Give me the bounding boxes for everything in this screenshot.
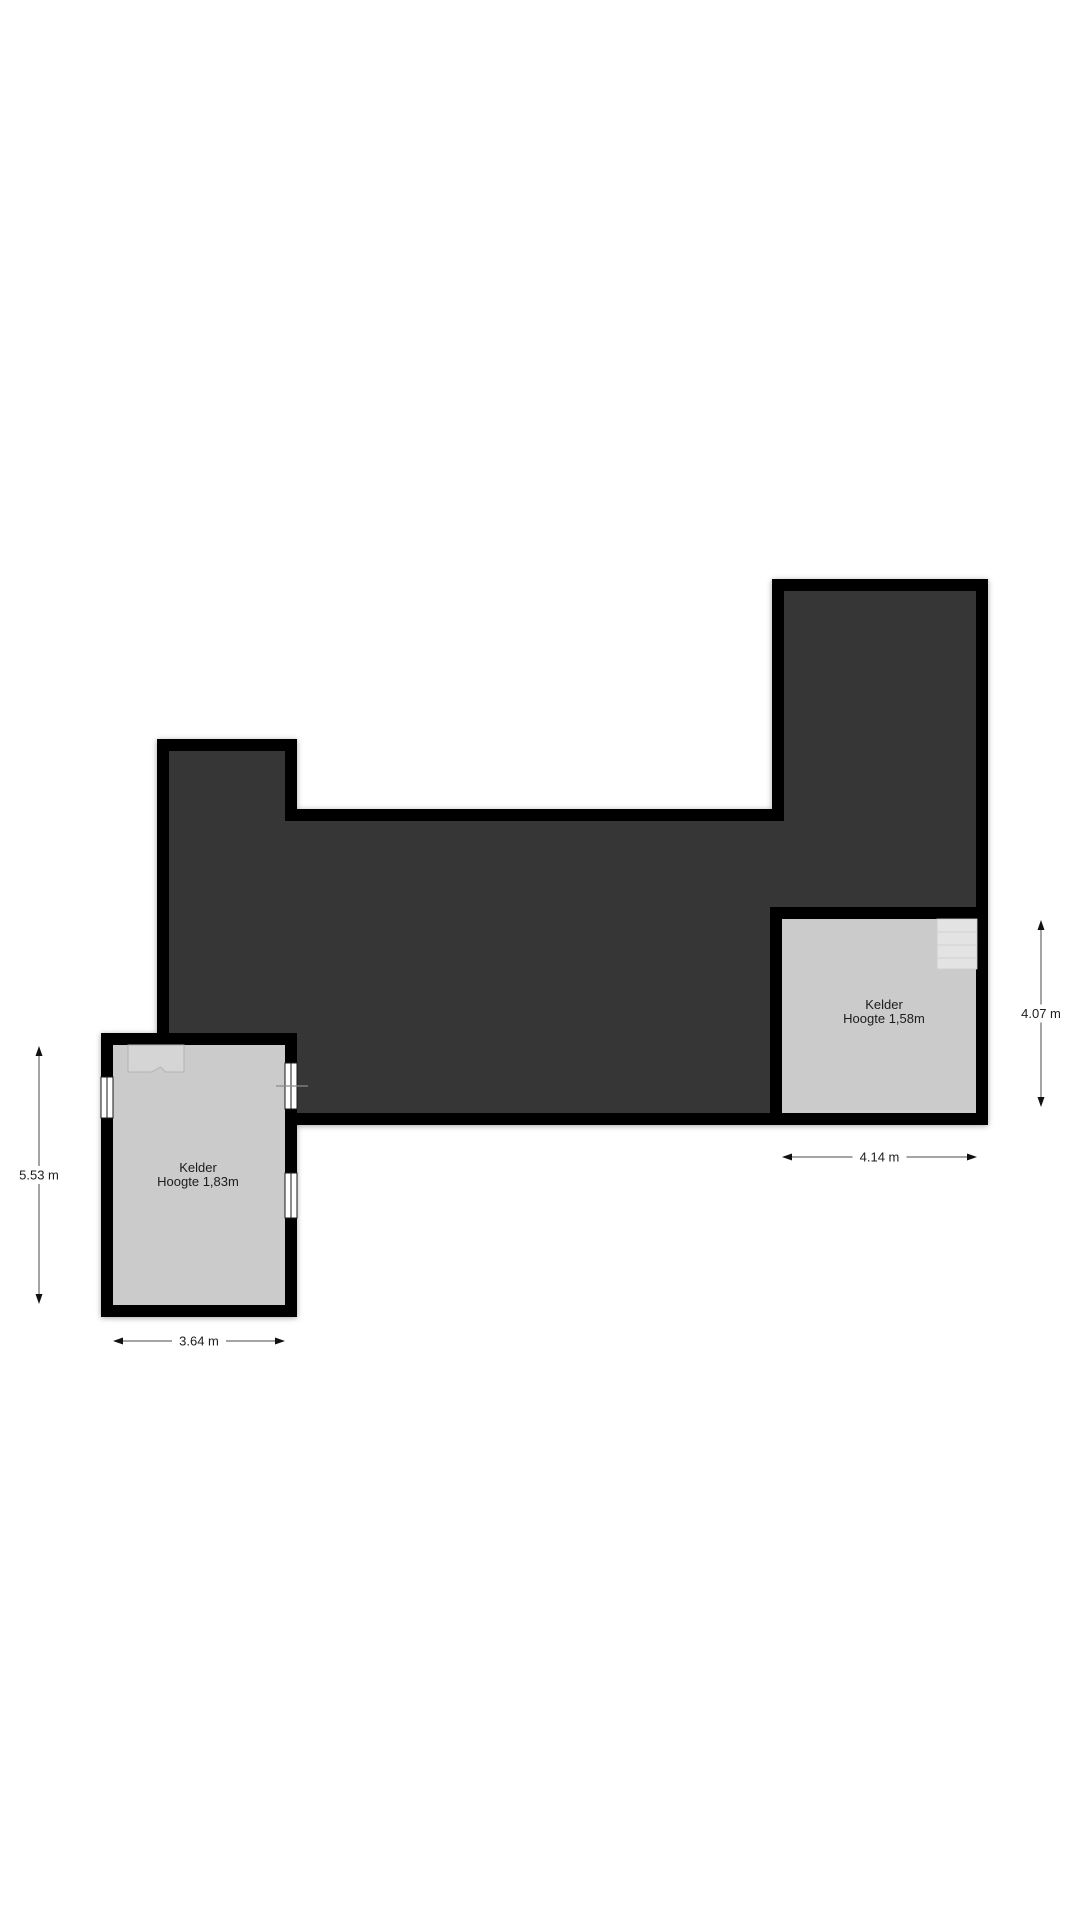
dim-left-height: 5.53 m [12, 1046, 66, 1304]
dim-right-width: 4.14 m [782, 1148, 977, 1166]
dimension-arrow [36, 1294, 43, 1304]
room-name-label: Kelder [865, 997, 903, 1012]
stairs-right [937, 919, 977, 969]
stairs-shape [128, 1045, 184, 1072]
room-name-label: Kelder [179, 1160, 217, 1175]
floorplan-page: KelderHoogte 1,83mKelderHoogte 1,58m5.53… [0, 0, 1080, 1920]
floorplan-svg: KelderHoogte 1,83mKelderHoogte 1,58m5.53… [0, 0, 1080, 1920]
dim-right-height: 4.07 m [1014, 920, 1068, 1107]
dimension-arrow [275, 1338, 285, 1345]
dimension-label: 4.14 m [860, 1150, 900, 1165]
dimension-arrow [967, 1154, 977, 1161]
stairs-shape [937, 919, 977, 969]
dimension-arrow [1038, 920, 1045, 930]
dimension-arrow [782, 1154, 792, 1161]
room-height-label: Hoogte 1,83m [157, 1174, 239, 1189]
stairs-left [128, 1045, 184, 1072]
dimension-arrow [113, 1338, 123, 1345]
dim-left-width: 3.64 m [113, 1332, 285, 1350]
room-height-label: Hoogte 1,58m [843, 1011, 925, 1026]
window-left-wall [101, 1077, 113, 1118]
plan-structure [107, 585, 982, 1311]
dimension-label: 3.64 m [179, 1334, 219, 1349]
window-right-wall-lower [285, 1173, 297, 1218]
dimension-arrow [1038, 1097, 1045, 1107]
dimension-label: 5.53 m [19, 1168, 59, 1183]
dimension-label: 4.07 m [1021, 1006, 1061, 1021]
dimension-arrow [36, 1046, 43, 1056]
